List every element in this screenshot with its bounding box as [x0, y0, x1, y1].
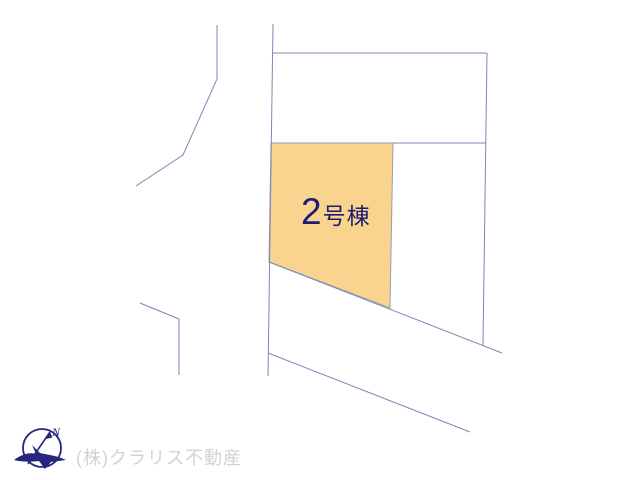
lot-layout-diagram: 2号棟 N (株)クラリス不動産 — [0, 0, 640, 480]
company-watermark: (株)クラリス不動産 — [76, 449, 242, 467]
road-diagonal-lower — [268, 353, 470, 432]
lot-2-number: 2 — [301, 193, 323, 230]
road-edge-upper-left — [136, 25, 217, 186]
site-east-boundary — [483, 53, 487, 345]
lot-2-suffix: 号棟 — [323, 205, 371, 228]
bird-silhouette-icon — [14, 445, 66, 469]
brand-footer: N (株)クラリス不動産 — [13, 423, 242, 471]
road-edge-lower-left — [140, 303, 179, 375]
compass-n-label: N — [51, 425, 61, 439]
compass-north-icon: N — [13, 423, 69, 471]
lot-map-svg — [0, 0, 640, 480]
lot-2-label: 2号棟 — [301, 193, 371, 230]
